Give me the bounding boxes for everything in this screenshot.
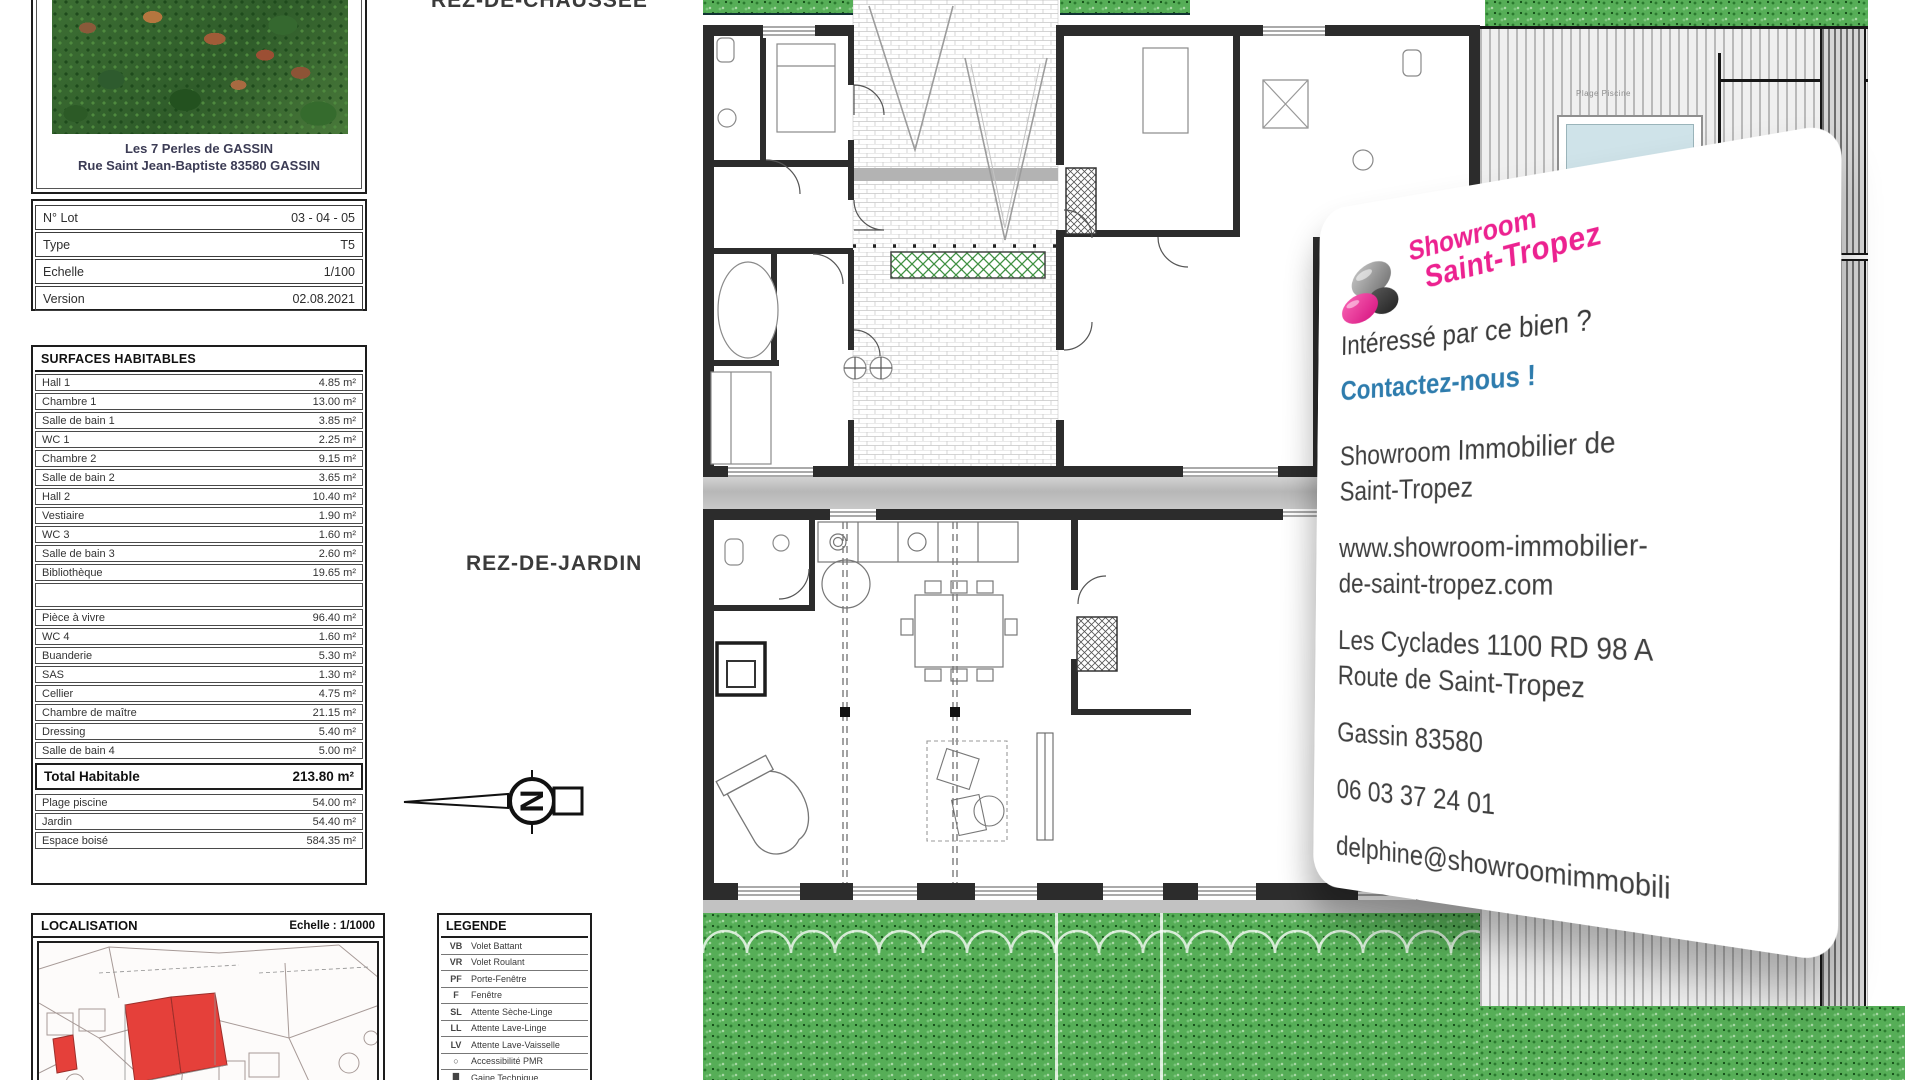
surface-value: 5.00 m² (319, 745, 356, 757)
surface-row: Chambre 2 9.15 m² (35, 450, 363, 467)
info-label: N° Lot (43, 211, 78, 225)
surface-row: WC 3 1.60 m² (35, 526, 363, 543)
legend-label: Porte-Fenêtre (471, 974, 588, 984)
garden-floor-label: REZ-DE-JARDIN (466, 552, 642, 576)
legend-code: █ (441, 1073, 471, 1080)
legend-row: █ Gaine Technique (441, 1070, 588, 1080)
surface-value: 2.60 m² (319, 548, 356, 560)
pebbles-logo-icon (1339, 253, 1406, 333)
garden-area-right (1480, 1006, 1905, 1080)
legend-label: Attente Sèche-Linge (471, 1007, 588, 1017)
surface-label: Cellier (42, 688, 73, 700)
legend-row: LL Attente Lave-Linge (441, 1021, 588, 1038)
surface-label: Jardin (42, 816, 72, 828)
legend-code: F (441, 990, 471, 1000)
surface-label: Salle de bain 1 (42, 415, 115, 427)
garden-area (703, 913, 1480, 1080)
legend-label: Volet Battant (471, 941, 588, 951)
agency-contact-body: Intéressé par ce bien ? Contactez-nous !… (1336, 275, 1824, 957)
legend-code: PF (441, 974, 471, 984)
surface-row: Salle de bain 2 3.65 m² (35, 469, 363, 486)
legend-row: F Fenêtre (441, 988, 588, 1005)
info-value: 1/100 (324, 265, 355, 279)
legend-row: LV Attente Lave-Vaisselle (441, 1037, 588, 1054)
surfaces-spacer-row (35, 583, 363, 607)
surface-label: Salle de bain 4 (42, 745, 115, 757)
surface-label: Plage piscine (42, 797, 107, 809)
legend-label: Volet Roulant (471, 957, 588, 967)
surface-row: Pièce à vivre 96.40 m² (35, 609, 363, 626)
legend-code: ○ (441, 1056, 471, 1066)
surface-row: SAS 1.30 m² (35, 666, 363, 683)
surface-label: Bibliothèque (42, 567, 103, 579)
surface-value: 4.85 m² (319, 377, 356, 389)
surface-value: 5.40 m² (319, 726, 356, 738)
surface-value: 3.65 m² (319, 472, 356, 484)
legend-row: ○ Accessibilité PMR (441, 1054, 588, 1071)
legend-code: SL (441, 1007, 471, 1017)
surface-label: SAS (42, 669, 64, 681)
surface-label: Buanderie (42, 650, 92, 662)
legend-title: LEGENDE (441, 917, 588, 938)
north-arrow-icon: N (402, 766, 602, 840)
surface-row: Bibliothèque 19.65 m² (35, 564, 363, 581)
info-value: T5 (340, 238, 355, 252)
property-photo-panel: Les 7 Perles de GASSIN Rue Saint Jean-Ba… (31, 0, 367, 194)
legend-row: VR Volet Roulant (441, 955, 588, 972)
ground-floor-label: REZ-DE-CHAUSSEE (431, 0, 648, 13)
surface-label: WC 1 (42, 434, 70, 446)
legend-code: LV (441, 1040, 471, 1050)
surfaces-title: SURFACES HABITABLES (35, 349, 363, 372)
localisation-map (37, 941, 379, 1080)
legend-row: VB Volet Battant (441, 938, 588, 955)
legend-label: Accessibilité PMR (471, 1056, 588, 1066)
property-caption: Les 7 Perles de GASSIN Rue Saint Jean-Ba… (33, 140, 365, 174)
surface-label: Salle de bain 2 (42, 472, 115, 484)
cadastral-map-drawing (39, 943, 379, 1080)
legend-row: PF Porte-Fenêtre (441, 971, 588, 988)
surface-row: Dressing 5.40 m² (35, 723, 363, 740)
info-label: Type (43, 238, 70, 252)
surface-value: 13.00 m² (313, 396, 356, 408)
surface-value: 584.35 m² (306, 835, 356, 847)
legend-label: Gaine Technique (471, 1073, 588, 1080)
aerial-photo (52, 0, 348, 134)
info-value: 03 - 04 - 05 (291, 211, 355, 225)
surface-value: 19.65 m² (313, 567, 356, 579)
surfaces-total-row: Total Habitable 213.80 m² (35, 763, 363, 790)
total-value: 213.80 m² (292, 769, 354, 784)
surface-label: Hall 1 (42, 377, 70, 389)
surface-label: Pièce à vivre (42, 612, 105, 624)
surface-row: Jardin 54.40 m² (35, 813, 363, 830)
surface-label: Vestiaire (42, 510, 84, 522)
legend-panel: LEGENDE VB Volet Battant VR Volet Roulan… (437, 913, 592, 1080)
localisation-panel: LOCALISATION Echelle : 1/1000 (31, 913, 385, 1080)
surface-value: 1.60 m² (319, 631, 356, 643)
surface-row: Chambre 1 13.00 m² (35, 393, 363, 410)
surface-value: 21.15 m² (313, 707, 356, 719)
surface-value: 54.00 m² (313, 797, 356, 809)
north-letter: N (514, 789, 550, 812)
legend-code: VB (441, 941, 471, 951)
surface-row: Espace boisé 584.35 m² (35, 832, 363, 849)
property-name: Les 7 Perles de GASSIN (33, 140, 365, 157)
surfaces-table: SURFACES HABITABLES Hall 1 4.85 m² Chamb… (31, 345, 367, 885)
info-value: 02.08.2021 (292, 292, 355, 306)
localisation-header: LOCALISATION Echelle : 1/1000 (33, 915, 383, 938)
lot-info-row: Echelle 1/100 (35, 259, 363, 284)
surface-row: Chambre de maître 21.15 m² (35, 704, 363, 721)
surface-label: Dressing (42, 726, 85, 738)
surface-label: Hall 2 (42, 491, 70, 503)
surface-value: 1.90 m² (319, 510, 356, 522)
surface-row: Hall 2 10.40 m² (35, 488, 363, 505)
lot-info-table: N° Lot 03 - 04 - 05 Type T5 Echelle 1/10… (31, 199, 367, 311)
surface-row: Cellier 4.75 m² (35, 685, 363, 702)
total-label: Total Habitable (44, 769, 140, 784)
info-label: Echelle (43, 265, 84, 279)
legend-row: SL Attente Sèche-Linge (441, 1004, 588, 1021)
surface-row: WC 1 2.25 m² (35, 431, 363, 448)
surface-value: 1.60 m² (319, 529, 356, 541)
surface-value: 10.40 m² (313, 491, 356, 503)
surface-label: WC 3 (42, 529, 70, 541)
legend-label: Attente Lave-Linge (471, 1023, 588, 1033)
legend-rows: VB Volet Battant VR Volet Roulant PF Por… (441, 938, 588, 1080)
surface-value: 5.30 m² (319, 650, 356, 662)
property-address: Rue Saint Jean-Baptiste 83580 GASSIN (33, 157, 365, 174)
surface-row: Hall 1 4.85 m² (35, 374, 363, 391)
surface-value: 4.75 m² (319, 688, 356, 700)
localisation-scale: Echelle : 1/1000 (289, 920, 375, 932)
surface-label: Espace boisé (42, 835, 108, 847)
legend-label: Attente Lave-Vaisselle (471, 1040, 588, 1050)
surface-label: WC 4 (42, 631, 70, 643)
surface-label: Chambre 1 (42, 396, 96, 408)
localisation-title: LOCALISATION (41, 918, 138, 933)
planter-strip (703, 0, 853, 15)
lot-info-row: N° Lot 03 - 04 - 05 (35, 205, 363, 230)
surface-row: Salle de bain 1 3.85 m² (35, 412, 363, 429)
surfaces-group-1: Hall 1 4.85 m² Chambre 1 13.00 m² Salle … (35, 374, 363, 581)
lot-info-row: Version 02.08.2021 (35, 286, 363, 311)
surface-value: 9.15 m² (319, 453, 356, 465)
surface-row: Salle de bain 4 5.00 m² (35, 742, 363, 759)
surface-row: WC 4 1.60 m² (35, 628, 363, 645)
pool-deck-label: Plage Piscine (1576, 89, 1631, 98)
legend-code: VR (441, 957, 471, 967)
website-line-2: de-saint-tropez.com (1339, 566, 1823, 609)
legend-label: Fenêtre (471, 990, 588, 1000)
outdoor-surfaces-group: Plage piscine 54.00 m² Jardin 54.40 m² E… (35, 794, 363, 849)
surface-row: Plage piscine 54.00 m² (35, 794, 363, 811)
logo-wordmark: Showroom Saint-Tropez (1408, 184, 1603, 297)
surface-value: 2.25 m² (319, 434, 356, 446)
surface-value: 54.40 m² (313, 816, 356, 828)
surface-value: 96.40 m² (313, 612, 356, 624)
surface-row: Salle de bain 3 2.60 m² (35, 545, 363, 562)
surface-value: 3.85 m² (319, 415, 356, 427)
agency-contact-card: Showroom Saint-Tropez Intéressé par ce b… (1313, 122, 1842, 963)
surface-row: Buanderie 5.30 m² (35, 647, 363, 664)
surfaces-group-2: Pièce à vivre 96.40 m² WC 4 1.60 m² Buan… (35, 609, 363, 759)
surface-value: 1.30 m² (319, 669, 356, 681)
surface-row: Vestiaire 1.90 m² (35, 507, 363, 524)
lot-info-row: Type T5 (35, 232, 363, 257)
planter-strip-top-right (1485, 0, 1868, 26)
website-line-1: www.showroom-immobilier- (1339, 522, 1823, 566)
surface-label: Chambre 2 (42, 453, 96, 465)
legend-code: LL (441, 1023, 471, 1033)
surface-label: Salle de bain 3 (42, 548, 115, 560)
info-label: Version (43, 292, 85, 306)
plan-sheet-page: Les 7 Perles de GASSIN Rue Saint Jean-Ba… (0, 0, 1920, 1080)
planter-strip (1060, 0, 1190, 15)
surface-label: Chambre de maître (42, 707, 137, 719)
